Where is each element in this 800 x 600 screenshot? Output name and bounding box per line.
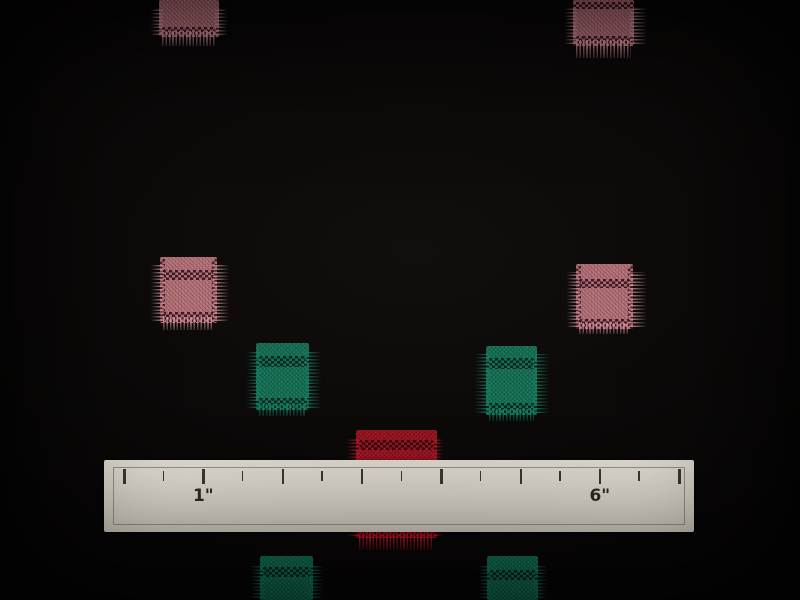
fabric-swatch-pink-top-right <box>564 0 648 58</box>
swatch-checker-band <box>486 358 537 369</box>
swatch-fringe-right <box>309 564 324 598</box>
swatch-weave <box>487 556 538 600</box>
ruler-tick <box>678 469 681 484</box>
fabric-swatch-pink-top-left <box>150 0 228 46</box>
swatch-checker-band <box>260 567 313 577</box>
swatch-fringe-left <box>566 272 580 327</box>
fabric-swatch-green-bottom-left <box>250 556 324 600</box>
swatch-fringe-bottom <box>579 323 630 334</box>
swatch-weave <box>256 343 309 410</box>
swatch-fringe-bottom <box>489 409 534 421</box>
swatch-weave <box>160 257 217 323</box>
ruler-tick <box>638 471 640 481</box>
ruler-tick <box>480 471 482 481</box>
swatch-weave <box>486 346 537 415</box>
swatch-fringe-right <box>629 272 648 327</box>
ruler-tick <box>242 471 244 481</box>
swatch-fringe-left <box>474 354 490 413</box>
swatch-fringe-right <box>213 265 230 321</box>
swatch-weave <box>260 556 313 600</box>
fabric-swatch-pink-mid-right <box>566 264 648 334</box>
ruler-tick <box>520 469 523 484</box>
swatch-fringe-right <box>533 354 550 413</box>
swatch-weave <box>576 264 633 329</box>
ruler-tick <box>282 469 285 484</box>
swatch-fringe-bottom <box>576 40 631 58</box>
ruler-tick <box>163 471 165 481</box>
ruler-tick <box>599 469 602 484</box>
swatch-fringe-right <box>215 8 228 35</box>
fabric-swatch-green-center-left <box>246 343 322 416</box>
fabric-swatch-pink-mid-left <box>150 257 230 330</box>
ruler-tick <box>559 471 561 481</box>
swatch-checker-band <box>256 356 309 367</box>
ruler-inch-label: 6" <box>589 486 610 506</box>
swatch-fringe-right <box>305 351 322 408</box>
swatch-fringe-left <box>250 564 264 598</box>
swatch-checker-band <box>487 570 538 580</box>
fabric-swatch-green-bottom-right <box>478 556 548 600</box>
ruler-tick <box>401 471 403 481</box>
ruler-inch-label: 1" <box>193 486 214 506</box>
ruler-tick <box>361 469 364 484</box>
fabric-swatch-green-center-right <box>474 346 550 421</box>
ruler-tick <box>321 471 323 481</box>
ruler-tick <box>202 469 205 484</box>
ruler-tick <box>123 469 126 484</box>
swatch-checker-band <box>160 270 217 280</box>
swatch-fringe-left <box>478 564 491 598</box>
swatch-fringe-left <box>564 8 577 44</box>
swatch-fringe-bottom <box>359 532 434 550</box>
swatch-fringe-left <box>150 8 163 35</box>
swatch-fringe-left <box>246 351 260 408</box>
swatch-fringe-right <box>630 8 648 44</box>
ruler: 1"6" <box>104 460 694 532</box>
fabric-photo: 1"6" <box>0 0 800 600</box>
swatch-checker-band <box>573 2 634 9</box>
swatch-fringe-bottom <box>163 317 214 330</box>
swatch-checker-band <box>356 440 437 450</box>
swatch-fringe-bottom <box>162 31 216 46</box>
swatch-fringe-bottom <box>259 404 306 416</box>
swatch-fringe-right <box>534 564 548 598</box>
swatch-fringe-left <box>150 265 164 321</box>
swatch-checker-band <box>576 279 633 288</box>
ruler-tick <box>440 469 443 484</box>
